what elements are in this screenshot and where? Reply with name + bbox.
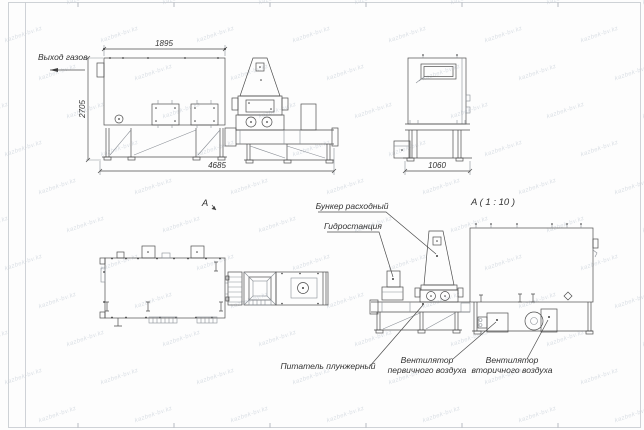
dim-4685: 4685 (98, 148, 336, 175)
anchor-marks (479, 294, 535, 302)
gas-outlet-arrow-icon (50, 68, 58, 72)
fan-housing-plan (276, 272, 328, 305)
hopper-side (232, 58, 288, 130)
dim-1060: 1060 (403, 161, 472, 175)
hatch-door-1 (152, 100, 179, 128)
conveyor-side (225, 104, 338, 163)
furnace-body-side (97, 57, 225, 128)
detail-view-title: A ( 1 : 10 ) (470, 197, 515, 208)
plan-view-label: A (201, 198, 208, 209)
coupling-plan (225, 272, 242, 305)
gas-outlet-label: Выход газов (38, 52, 88, 62)
feeder-block-detail (420, 290, 458, 302)
primary-fan (478, 313, 508, 332)
hydrostation-callout-label: Гидростанция (324, 221, 382, 231)
hopper-callout-label: Бункер расходный (316, 201, 389, 211)
fan-bay-detail (472, 294, 593, 334)
drawing-canvas: 1895 Выход газов 2705 (0, 0, 644, 430)
dim-1895-text: 1895 (155, 39, 173, 48)
secondary-fan (525, 309, 557, 332)
dim-1060-text: 1060 (428, 161, 446, 170)
hatch-door-2 (191, 100, 218, 128)
furnace-body-end (408, 58, 466, 124)
end-view: 1060 (394, 54, 472, 175)
side-view: 1895 Выход газов 2705 (38, 39, 338, 175)
dim-2705-text: 2705 (78, 100, 87, 119)
plan-bolt-dots (103, 258, 221, 319)
furnace-frame-side (102, 128, 227, 160)
gas-outlet-callout: Выход газов (38, 52, 88, 72)
hopper-detail (415, 231, 463, 302)
feeder-block-side (236, 115, 284, 130)
frame-end (403, 130, 472, 161)
conveyor-detail (370, 300, 470, 333)
feeder-callout-label: Питатель плунжерный (280, 361, 375, 371)
dim-1895: 1895 (102, 39, 227, 56)
secondary-fan-callout-line2: вторичного воздуха (472, 365, 553, 375)
furnace-body-plan (105, 258, 225, 318)
section-arrow-icon (212, 206, 217, 210)
dim-4685-text: 4685 (208, 161, 226, 170)
hopper-plan (244, 272, 276, 305)
diamond-mark-icon (564, 292, 572, 300)
drawing-sheet: kazbek-bv.kzkazbek-bv.kzkazbek-bv.kzkazb… (0, 0, 644, 430)
primary-fan-callout-line2: первичного воздуха (388, 365, 467, 375)
plan-view: A (100, 198, 328, 326)
top-hatch-end (416, 64, 456, 83)
secondary-fan-callout-line1: Вентилятор (486, 355, 539, 365)
fan-circle-detail (525, 312, 543, 330)
furnace-body-detail (470, 223, 598, 302)
plan-ibeam-marks (105, 262, 223, 311)
primary-fan-callout-line1: Вентилятор (401, 355, 454, 365)
side-box-end (394, 141, 410, 158)
dim-2705: 2705 (78, 56, 103, 162)
air-duct-side (301, 104, 316, 130)
